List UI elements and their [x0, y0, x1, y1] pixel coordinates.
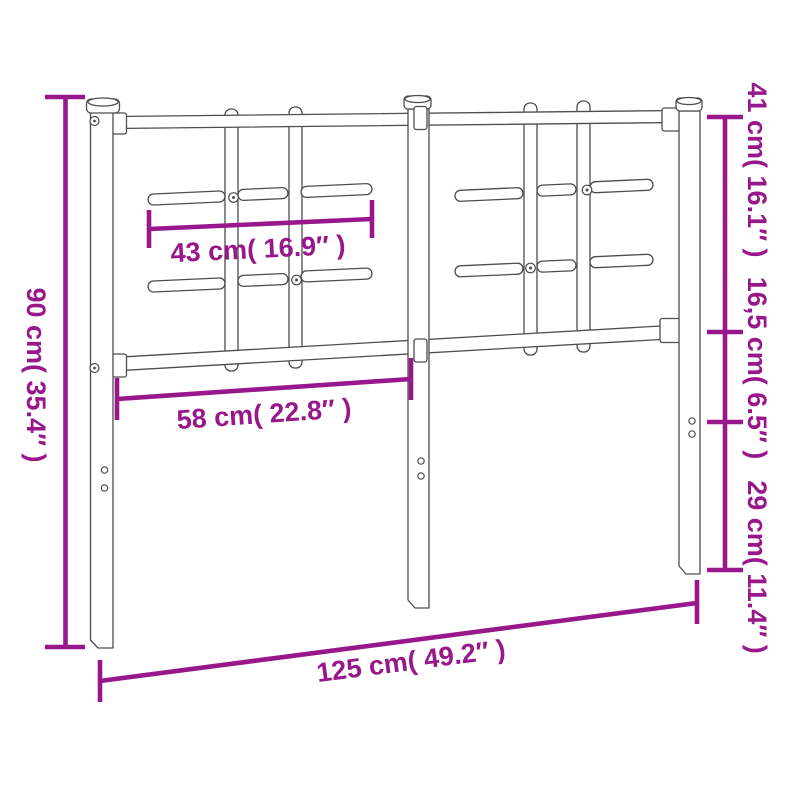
slat	[301, 183, 372, 197]
vertical-bar	[577, 101, 590, 352]
label-upper-section-height: 41 cm( 16.1″ )	[742, 82, 772, 257]
screw-icon	[229, 193, 239, 203]
hole	[689, 418, 695, 424]
hole	[418, 473, 424, 479]
headboard-drawing	[87, 96, 703, 649]
bracket	[112, 113, 127, 134]
slat	[590, 179, 653, 193]
slat	[537, 260, 576, 273]
label-lower-section-height: 29 cm( 11.4″ )	[742, 480, 772, 654]
dimension-labels: 90 cm( 35.4″ ) 41 cm( 16.1″ ) 16,5 cm( 6…	[21, 82, 772, 688]
label-slat-row-width: 43 cm( 16.9″ )	[170, 230, 346, 269]
slat	[537, 184, 576, 197]
screw-icon	[90, 364, 99, 373]
label-middle-section-height: 16,5 cm( 6.5″ )	[742, 277, 772, 460]
hole	[101, 467, 107, 473]
slat	[590, 254, 653, 268]
slat	[455, 263, 523, 277]
hole	[418, 458, 424, 464]
hole	[689, 431, 695, 437]
center-post	[404, 96, 431, 609]
dimension-line-overall-width	[100, 580, 697, 702]
dimension-line-right-sections	[707, 117, 743, 570]
slat	[238, 273, 288, 286]
screw-icon	[582, 185, 592, 195]
label-overall-height: 90 cm( 35.4″ )	[21, 287, 51, 462]
screw-icon	[526, 263, 536, 273]
slat	[301, 268, 372, 282]
bracket	[112, 354, 127, 377]
hole	[101, 485, 107, 491]
slat	[148, 191, 225, 205]
bottom-rail	[113, 325, 678, 371]
headboard-diagram-canvas: 90 cm( 35.4″ ) 41 cm( 16.1″ ) 16,5 cm( 6…	[0, 0, 800, 800]
slat	[148, 278, 225, 292]
slat	[455, 187, 523, 201]
vertical-bar	[524, 103, 537, 355]
right-post	[676, 98, 702, 575]
bracket	[414, 339, 427, 362]
dimension-diagram: 90 cm( 35.4″ ) 41 cm( 16.1″ ) 16,5 cm( 6…	[0, 0, 800, 800]
top-rail	[113, 111, 678, 129]
bracket	[414, 107, 427, 130]
label-panel-width: 58 cm( 22.8″ )	[176, 393, 353, 435]
slat	[238, 187, 288, 200]
screw-icon	[292, 275, 302, 285]
screw-icon	[90, 117, 99, 126]
